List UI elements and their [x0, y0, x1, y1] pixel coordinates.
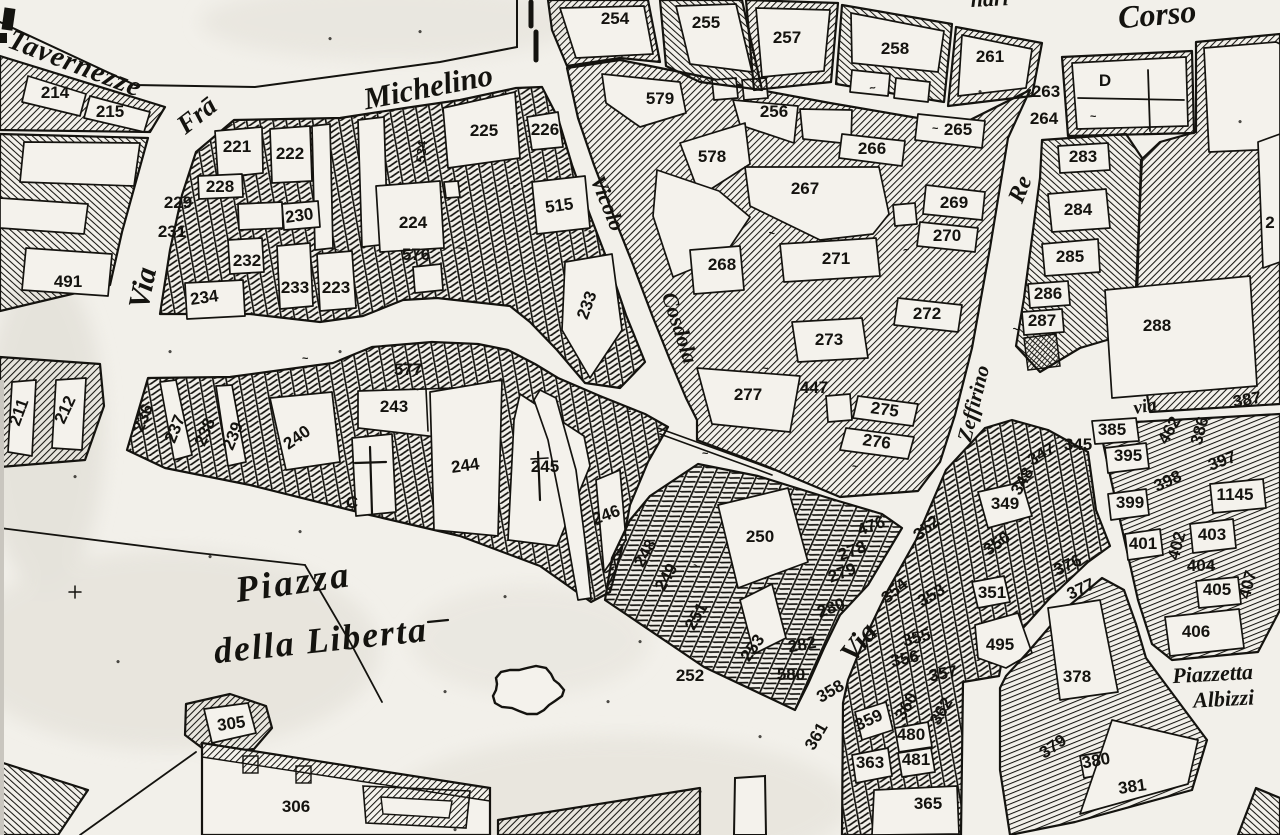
svg-text:406: 406	[1182, 622, 1210, 641]
svg-text:Albizzi: Albizzi	[1190, 684, 1255, 712]
svg-text:232: 232	[233, 251, 261, 270]
svg-text:250: 250	[746, 527, 774, 546]
svg-text:272: 272	[913, 304, 941, 323]
svg-text:~: ~	[242, 198, 249, 210]
svg-text:363: 363	[856, 753, 884, 772]
svg-text:447: 447	[800, 378, 828, 397]
svg-text:222: 222	[276, 144, 304, 163]
svg-text:277: 277	[734, 385, 762, 404]
svg-text:580: 580	[777, 665, 805, 684]
svg-text:534: 534	[413, 139, 430, 163]
svg-text:252: 252	[676, 666, 704, 685]
svg-text:365: 365	[914, 794, 942, 813]
svg-text:243: 243	[380, 397, 408, 416]
svg-text:257: 257	[773, 28, 801, 47]
svg-text:266: 266	[858, 139, 886, 158]
svg-text:286: 286	[1034, 284, 1062, 303]
svg-text:283: 283	[1069, 147, 1097, 166]
svg-text:C: C	[346, 493, 358, 512]
svg-text:265: 265	[944, 120, 972, 139]
svg-text:579: 579	[646, 89, 674, 108]
svg-text:404: 404	[1187, 556, 1216, 575]
svg-text:481: 481	[902, 750, 930, 769]
svg-text:405: 405	[1203, 580, 1231, 599]
svg-text:~: ~	[762, 363, 769, 375]
svg-text:577: 577	[394, 360, 422, 379]
svg-text:351: 351	[978, 583, 1006, 602]
svg-text:345: 345	[1064, 435, 1092, 454]
svg-text:228: 228	[206, 177, 234, 196]
svg-text:306: 306	[282, 797, 310, 816]
svg-text:268: 268	[708, 255, 736, 274]
svg-text:~: ~	[625, 406, 632, 418]
svg-text:233: 233	[281, 278, 309, 297]
svg-text:264: 264	[1030, 109, 1059, 128]
svg-text:403: 403	[1198, 525, 1226, 544]
svg-text:231: 231	[158, 222, 186, 241]
svg-text:229: 229	[164, 193, 192, 212]
svg-text:480: 480	[897, 725, 925, 744]
svg-text:284: 284	[1064, 200, 1093, 219]
svg-text:214: 214	[41, 83, 70, 102]
svg-text:~: ~	[302, 353, 309, 365]
svg-text:D: D	[1099, 71, 1111, 90]
svg-text:hari: hari	[970, 0, 1010, 12]
svg-text:378: 378	[1063, 667, 1091, 686]
svg-text:254: 254	[601, 9, 630, 28]
svg-text:215: 215	[96, 102, 124, 121]
svg-text:Piazzetta: Piazzetta	[1171, 659, 1254, 688]
svg-text:515: 515	[544, 194, 575, 217]
svg-text:2: 2	[1265, 213, 1274, 232]
svg-text:~: ~	[1090, 111, 1097, 123]
svg-text:256: 256	[760, 102, 788, 121]
svg-text:258: 258	[881, 39, 909, 58]
svg-text:~: ~	[702, 448, 709, 460]
svg-text:267: 267	[791, 179, 819, 198]
svg-text:287: 287	[1028, 311, 1056, 330]
svg-text:381: 381	[1117, 775, 1148, 798]
svg-text:270: 270	[933, 226, 961, 245]
svg-text:1145: 1145	[1217, 485, 1254, 504]
svg-text:225: 225	[470, 121, 498, 140]
svg-text:491: 491	[54, 272, 82, 291]
svg-text:395: 395	[1114, 446, 1142, 465]
svg-text:263: 263	[1032, 82, 1060, 101]
svg-text:230: 230	[284, 204, 315, 227]
svg-text:349: 349	[991, 494, 1019, 513]
svg-text:276: 276	[861, 430, 892, 453]
svg-text:244: 244	[450, 454, 481, 477]
svg-text:305: 305	[216, 712, 247, 735]
svg-text:576: 576	[402, 245, 430, 264]
svg-text:245: 245	[531, 457, 559, 476]
svg-text:~: ~	[932, 123, 939, 135]
svg-text:255: 255	[692, 13, 720, 32]
svg-text:275: 275	[869, 398, 900, 421]
svg-text:~: ~	[852, 461, 859, 473]
svg-text:288: 288	[1143, 316, 1171, 335]
svg-text:269: 269	[940, 193, 968, 212]
svg-text:226: 226	[531, 120, 559, 139]
svg-text:285: 285	[1056, 247, 1084, 266]
svg-text:223: 223	[322, 278, 350, 297]
svg-text:~: ~	[458, 243, 465, 255]
svg-text:261: 261	[976, 47, 1004, 66]
svg-text:221: 221	[223, 137, 251, 156]
svg-text:399: 399	[1116, 493, 1144, 512]
svg-text:271: 271	[822, 249, 850, 268]
svg-text:578: 578	[698, 147, 726, 166]
svg-text:401: 401	[1129, 534, 1157, 553]
svg-text:495: 495	[986, 635, 1014, 654]
svg-text:224: 224	[399, 213, 428, 232]
svg-text:234: 234	[189, 286, 220, 309]
svg-text:via: via	[1132, 394, 1159, 419]
svg-text:273: 273	[815, 330, 843, 349]
svg-text:385: 385	[1098, 420, 1126, 439]
